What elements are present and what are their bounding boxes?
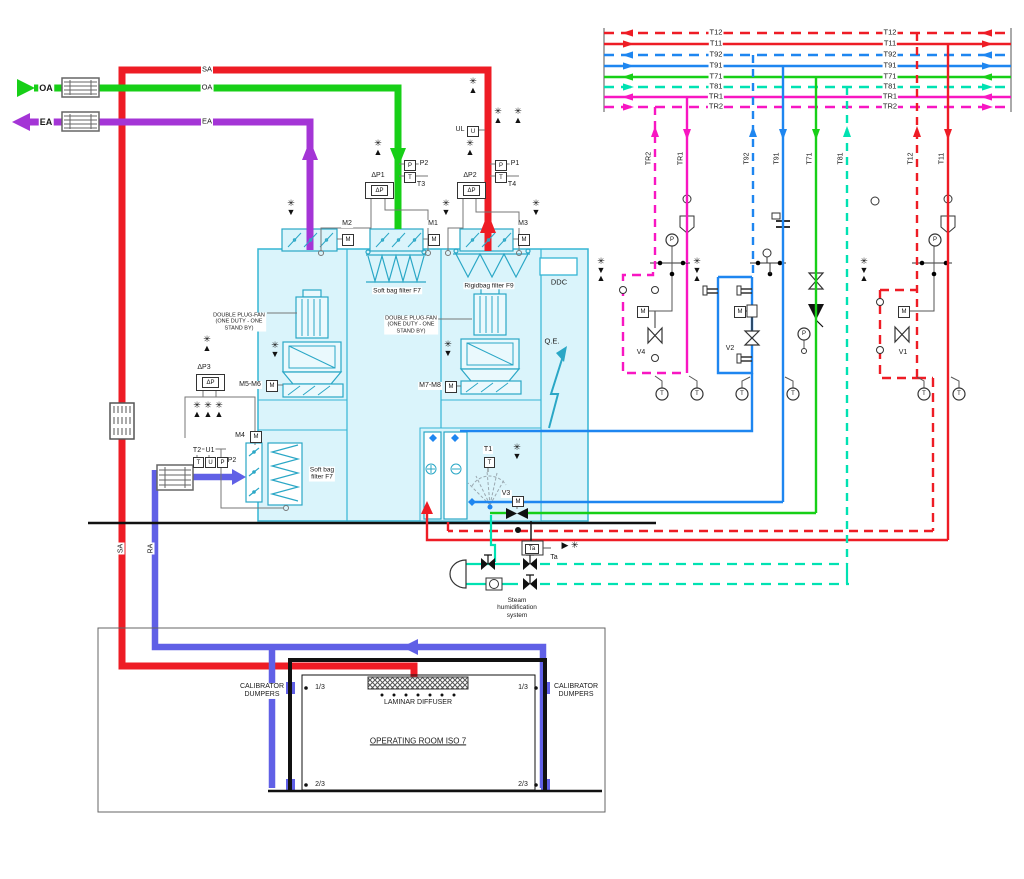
v4-motor-box: M [637,306,649,318]
bus-arrow-T71 [622,73,633,80]
bus-label-T92-2: T92 [883,51,898,60]
ra-louver [157,465,193,490]
u1-box: U [205,457,216,468]
temperature-gauge-label-4: T [791,391,795,397]
p1-label: P1 [510,160,521,168]
bus-label-TR2-1: TR2 [708,103,724,112]
room-inner [302,675,535,790]
frac-bottom-left: 2/3 [314,781,326,789]
t3-label: T3 [416,181,426,189]
airflow-marker-13: ✳ ▲ [204,401,213,418]
ea-intake-label: EA [39,117,54,127]
drop-label-T91: T91 [774,124,781,194]
damper-m2-label: M2 [341,220,353,228]
frac-top-left: 1/3 [314,684,326,692]
sa-riser-label: SA [118,514,125,584]
m56-motor-box: M [266,380,278,392]
steam-system-label: Steam humidification system [496,597,538,619]
t1-box: T [484,457,495,468]
frac-bottom-right: 2/3 [517,781,529,789]
ra-riser-label: RA [148,514,155,584]
v4-valve-circuit [620,195,695,373]
airflow-marker-15: ✳ ▼ [513,443,522,460]
v4-label: V4 [636,349,647,357]
drop-label-TR1: TR1 [678,124,685,194]
bus-label-T81-2: T81 [883,83,898,92]
rigid-bag-filter-label: Rigidbag filter F9 [463,282,514,289]
calibrator-dumpers-left-label: CALIBRATOR DUMPERS [239,683,285,699]
dp2-label: ΔP2 [462,172,477,180]
hvac-schematic: OA EA SA OA EA SA RA M2 M1 M3 M4 M5-M6 M… [0,0,1024,879]
ra-arrow-left [402,639,418,655]
t3-box: T [404,172,416,183]
bus-arrow-T11 [623,40,634,47]
v1-label: V1 [898,349,909,357]
airflow-marker-18: ✳ ▼ ▲ [860,257,869,283]
m2-motor-box: M [342,234,354,246]
damper-m56-label: M5-M6 [238,381,262,389]
airflow-marker-7: ✳ ▼ [442,199,451,216]
damper-m1-label: M1 [427,220,439,228]
v2-motor-box: M [734,306,746,318]
airflow-marker-6: ✳ ▼ [287,199,296,216]
bus-label-TR2-2: TR2 [882,103,898,112]
airflow-marker-14: ✳ ▲ [215,401,224,418]
airflow-marker-17: ✳ ▼ ▲ [693,257,702,283]
bus-label-T81-1: T81 [709,83,724,92]
bus-label-T92-1: T92 [709,51,724,60]
dp1-sensor-box: ΔP [365,182,394,199]
temperature-gauge-label-3: T [740,391,744,397]
temperature-gauge-label-6: T [957,391,961,397]
oa-louver [62,78,99,97]
p2-return-label: P2 [227,457,238,465]
bus-label-T12-1: T12 [709,29,724,38]
ea-louver [62,112,99,131]
damper-m3-label: M3 [517,220,529,228]
outdoor-air-duct [17,79,406,229]
m3-motor-box: M [518,234,530,246]
ddc-label: DDC [550,279,568,288]
bus-arrow-T71 [981,73,992,80]
ul-label: UL [455,126,466,134]
bus-arrow-T81 [623,83,634,90]
operating-room-label: OPERATING ROOM ISO 7 [369,736,467,745]
bus-label-T71-1: T71 [709,73,724,82]
frac-top-right: 1/3 [517,684,529,692]
bus-arrow-T92 [622,51,633,58]
drop-label-T71: T71 [807,124,814,194]
v2-label: V2 [725,345,736,353]
t4-box: T [495,172,507,183]
v3-label: V3 [501,490,512,498]
oa-intake-label: OA [38,83,54,93]
bus-arrow-TR2 [982,103,993,110]
plug-fan-note-left: DOUBLE PLUG-FAN (ONE DUTY - ONE STAND BY… [212,313,266,332]
qe-label: Q.E. [543,338,560,347]
airflow-marker-16: ✳ ▼ ▲ [597,257,606,283]
bus-arrow-TR2 [623,103,634,110]
sa-arrow-up [480,213,496,233]
bus-label-T91-2: T91 [883,62,898,71]
soft-bag-filter-f7-lower [268,443,302,505]
airflow-marker-11: ✳ ▲ [203,335,212,352]
sa-silencer [110,403,134,439]
p2-return-box: P [217,457,228,468]
dp2-sensor-box: ΔP [457,182,486,199]
dp1-label: ΔP1 [370,172,385,180]
temperature-gauge-label-2: T [695,391,699,397]
oa-intake-arrow [17,79,35,97]
laminar-diffuser-icon [368,677,468,689]
airflow-marker-10: ✳ ▼ [444,340,453,357]
sa-duct-label: SA [201,66,213,75]
m78-motor-box: M [445,381,457,393]
temperature-gauge-label-1: T [660,391,664,397]
m4-motor-box: M [250,431,262,443]
v1-motor-box: M [898,306,910,318]
mixing-damper-m4 [246,443,262,502]
operating-room [98,628,605,812]
oa-duct-label: OA [201,84,214,93]
pressure-gauge-label-8: P [933,237,937,243]
bus-arrow-TR1 [981,93,992,100]
soft-bag-filter-lower-label: Soft bag filter F7 [309,467,335,482]
airflow-marker-19: ▶ ✳ [562,541,579,550]
airflow-marker-9: ✳ ▼ [271,341,280,358]
bus-arrow-T91 [623,62,634,69]
u1-label: U1 [205,447,216,455]
dp3-sensor-box: ΔP [196,374,225,391]
laminar-diffuser-label: LAMINAR DIFFUSER [383,699,453,707]
airflow-marker-12: ✳ ▲ [193,401,202,418]
bus-arrow-T12 [622,29,633,36]
drop-label-T11: T11 [939,124,946,194]
bus-label-T12-2: T12 [883,29,898,38]
ta-inner-box: Ta [525,544,539,554]
drop-label-T92: T92 [744,124,751,194]
plug-fan-note-right: DOUBLE PLUG-FAN (ONE DUTY - ONE STAND BY… [384,316,438,335]
ul-box: U [467,126,479,137]
bus-arrow-T11 [982,40,993,47]
bus-label-TR1-1: TR1 [708,93,724,102]
diffuser-outlets [381,694,456,697]
damper-m4-label: M4 [234,432,246,440]
steam-humidification-system [450,515,849,590]
drop-label-T12: T12 [908,124,915,194]
calibrator-dumpers-right-label: CALIBRATOR DUMPERS [553,683,599,699]
damper-m78-label: M7-M8 [418,382,442,390]
drop-label-T81: T81 [838,124,845,194]
t4-label: T4 [507,181,517,189]
room-enclosure [98,628,605,812]
ddc-controller-box [540,258,577,275]
airflow-marker-4: ✳ ▲ [494,107,503,124]
airflow-marker-5: ✳ ▲ [514,107,523,124]
m1-motor-box: M [428,234,440,246]
cooling-coil [444,432,467,519]
bus-arrow-T91 [982,62,993,69]
bus-arrow-T81 [982,83,993,90]
bus-label-T91-1: T91 [709,62,724,71]
p1-box: P [495,160,507,171]
pressure-gauge-label-9: P [802,331,806,337]
bus-arrow-T92 [981,51,992,58]
airflow-marker-1: ✳ ▲ [374,139,383,156]
airflow-marker-8: ✳ ▼ [532,199,541,216]
temperature-gauge-label-5: T [922,391,926,397]
dp3-label: ΔP3 [196,364,211,372]
airflow-marker-3: ✳ ▲ [466,139,475,156]
exhaust-air-duct [12,113,318,250]
bus-label-T71-2: T71 [883,73,898,82]
bus-arrow-T12 [981,29,992,36]
airflow-marker-2: ✳ ▲ [469,77,478,94]
ea-exhaust-arrow [12,113,30,131]
schematic-canvas [0,0,1024,879]
ea-arrow-up [302,140,318,160]
bus-label-T11-2: T11 [883,40,897,49]
t2-box: T [193,457,204,468]
ea-duct-label: EA [201,118,213,127]
steam-generator-icon [450,560,466,588]
bus-label-T11-1: T11 [709,40,723,49]
p2-supply-box: P [404,160,416,171]
bus-label-TR1-2: TR1 [882,93,898,102]
ra-arrow-into-ahu [232,469,246,485]
p2-supply-label: P2 [419,160,430,168]
drop-label-TR2: TR2 [646,124,653,194]
pressure-gauge-label-7: P [670,237,674,243]
t1-label: T1 [483,446,493,454]
ta-label: Ta [549,554,558,562]
v3-motor-box: M [512,496,524,507]
soft-bag-filter-top-label: Soft bag filter F7 [372,287,422,294]
bus-arrow-TR1 [622,93,633,100]
t2-label: T2 [192,447,202,455]
